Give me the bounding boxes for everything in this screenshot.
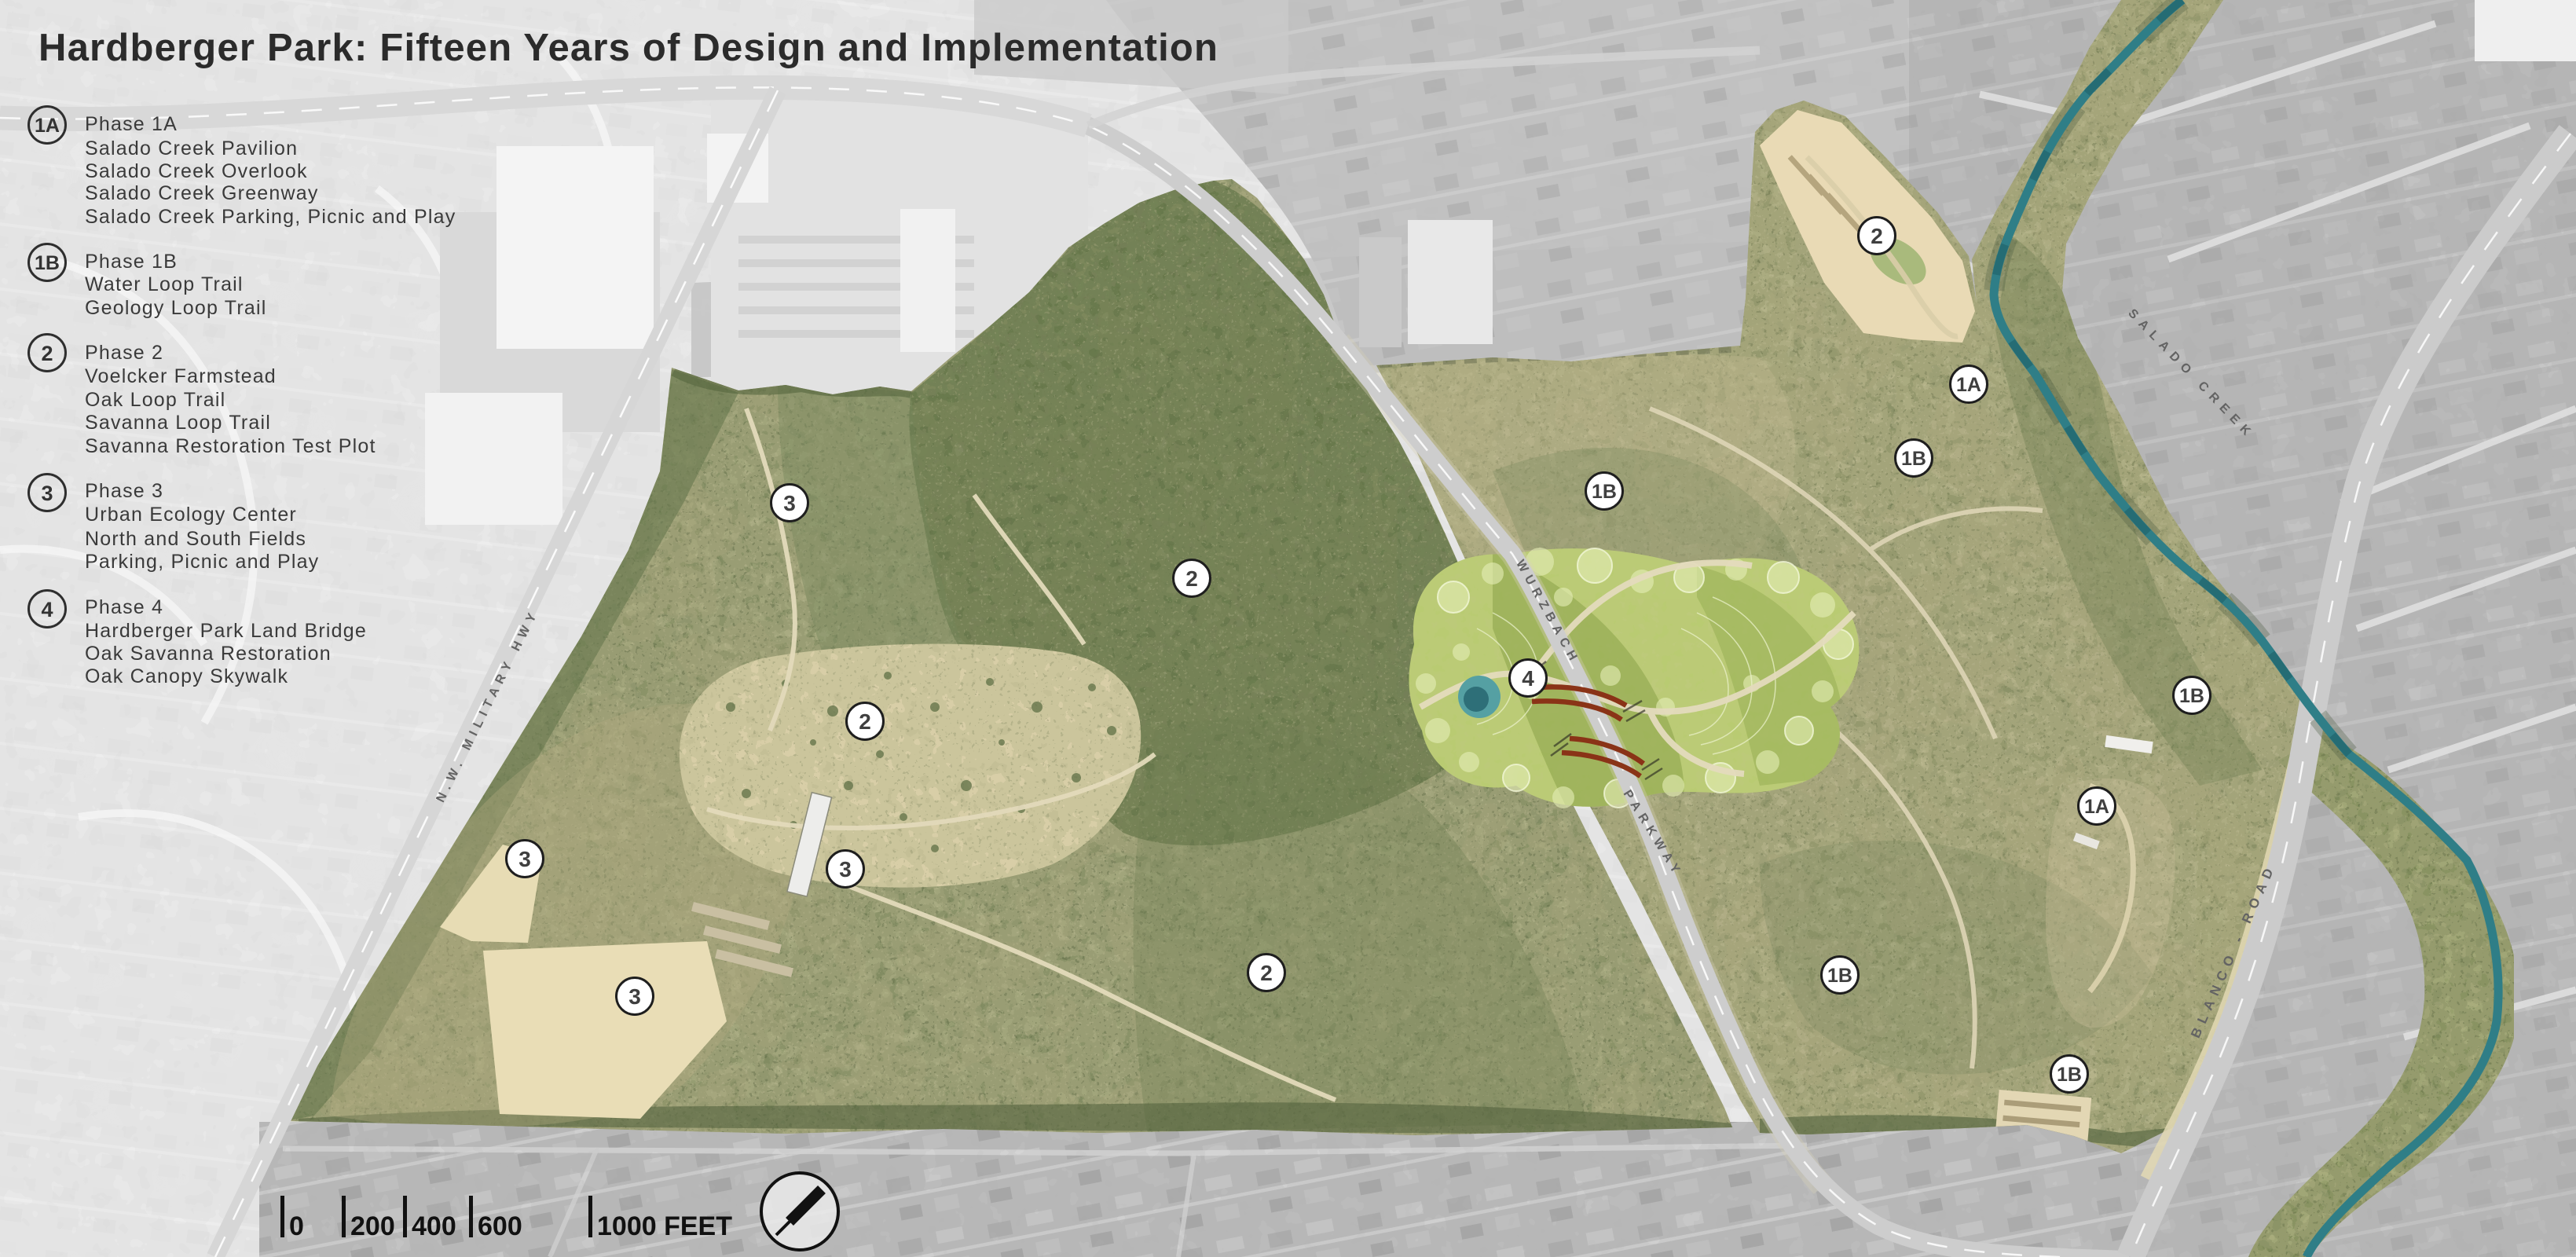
svg-text:3: 3 [518,847,531,871]
svg-text:Salado Creek Greenway: Salado Creek Greenway [85,182,319,204]
svg-text:Phase 3: Phase 3 [85,480,163,502]
svg-text:200: 200 [350,1211,395,1241]
svg-text:Oak Loop Trail: Oak Loop Trail [85,389,225,411]
svg-text:1B: 1B [1901,448,1926,470]
svg-text:North and South Fields: North and South Fields [85,528,306,550]
svg-text:3: 3 [628,984,641,1009]
svg-text:Phase 1A: Phase 1A [85,113,178,135]
svg-text:4: 4 [41,598,53,621]
svg-text:2: 2 [1185,566,1198,591]
svg-text:2: 2 [1260,961,1273,985]
svg-text:Salado Creek Pavilion: Salado Creek Pavilion [85,137,298,159]
svg-text:3: 3 [41,482,53,505]
svg-text:Hardberger Park: Fifteen Years: Hardberger Park: Fifteen Years of Design… [38,27,1218,69]
svg-text:Water Loop Trail: Water Loop Trail [85,273,244,295]
svg-text:4: 4 [1522,666,1534,691]
svg-text:600: 600 [478,1211,522,1241]
svg-text:Voelcker Farmstead: Voelcker Farmstead [85,365,277,387]
svg-text:Oak Canopy Skywalk: Oak Canopy Skywalk [85,665,288,687]
svg-text:Phase 2: Phase 2 [85,342,163,364]
svg-text:1000 FEET: 1000 FEET [597,1211,732,1241]
svg-text:Oak Savanna Restoration: Oak Savanna Restoration [85,643,332,665]
svg-text:400: 400 [412,1211,456,1241]
svg-text:Salado Creek Parking, Picnic a: Salado Creek Parking, Picnic and Play [85,206,456,228]
svg-text:1B: 1B [2057,1064,2082,1086]
svg-text:Savanna Loop Trail: Savanna Loop Trail [85,412,271,434]
svg-text:Phase 4: Phase 4 [85,596,163,618]
svg-text:Savanna Restoration Test Plot: Savanna Restoration Test Plot [85,435,376,457]
svg-text:0: 0 [289,1211,304,1241]
svg-text:2: 2 [1871,224,1883,248]
svg-text:Hardberger Park Land Bridge: Hardberger Park Land Bridge [85,620,367,642]
svg-text:1A: 1A [1956,374,1981,396]
svg-text:1B: 1B [1827,965,1852,987]
svg-text:3: 3 [839,857,852,881]
svg-text:Geology Loop Trail: Geology Loop Trail [85,297,266,319]
svg-text:1B: 1B [2179,685,2204,707]
svg-text:1A: 1A [35,115,60,137]
svg-text:2: 2 [859,709,871,734]
svg-text:Phase 1B: Phase 1B [85,251,178,273]
svg-text:1B: 1B [1592,481,1617,503]
svg-text:Urban Ecology Center: Urban Ecology Center [85,504,297,526]
svg-text:Salado Creek Overlook: Salado Creek Overlook [85,160,308,182]
svg-text:1A: 1A [2084,796,2109,818]
svg-text:1B: 1B [35,252,60,274]
svg-text:2: 2 [41,342,53,365]
svg-text:Parking, Picnic and Play: Parking, Picnic and Play [85,551,319,573]
svg-text:3: 3 [783,491,796,515]
